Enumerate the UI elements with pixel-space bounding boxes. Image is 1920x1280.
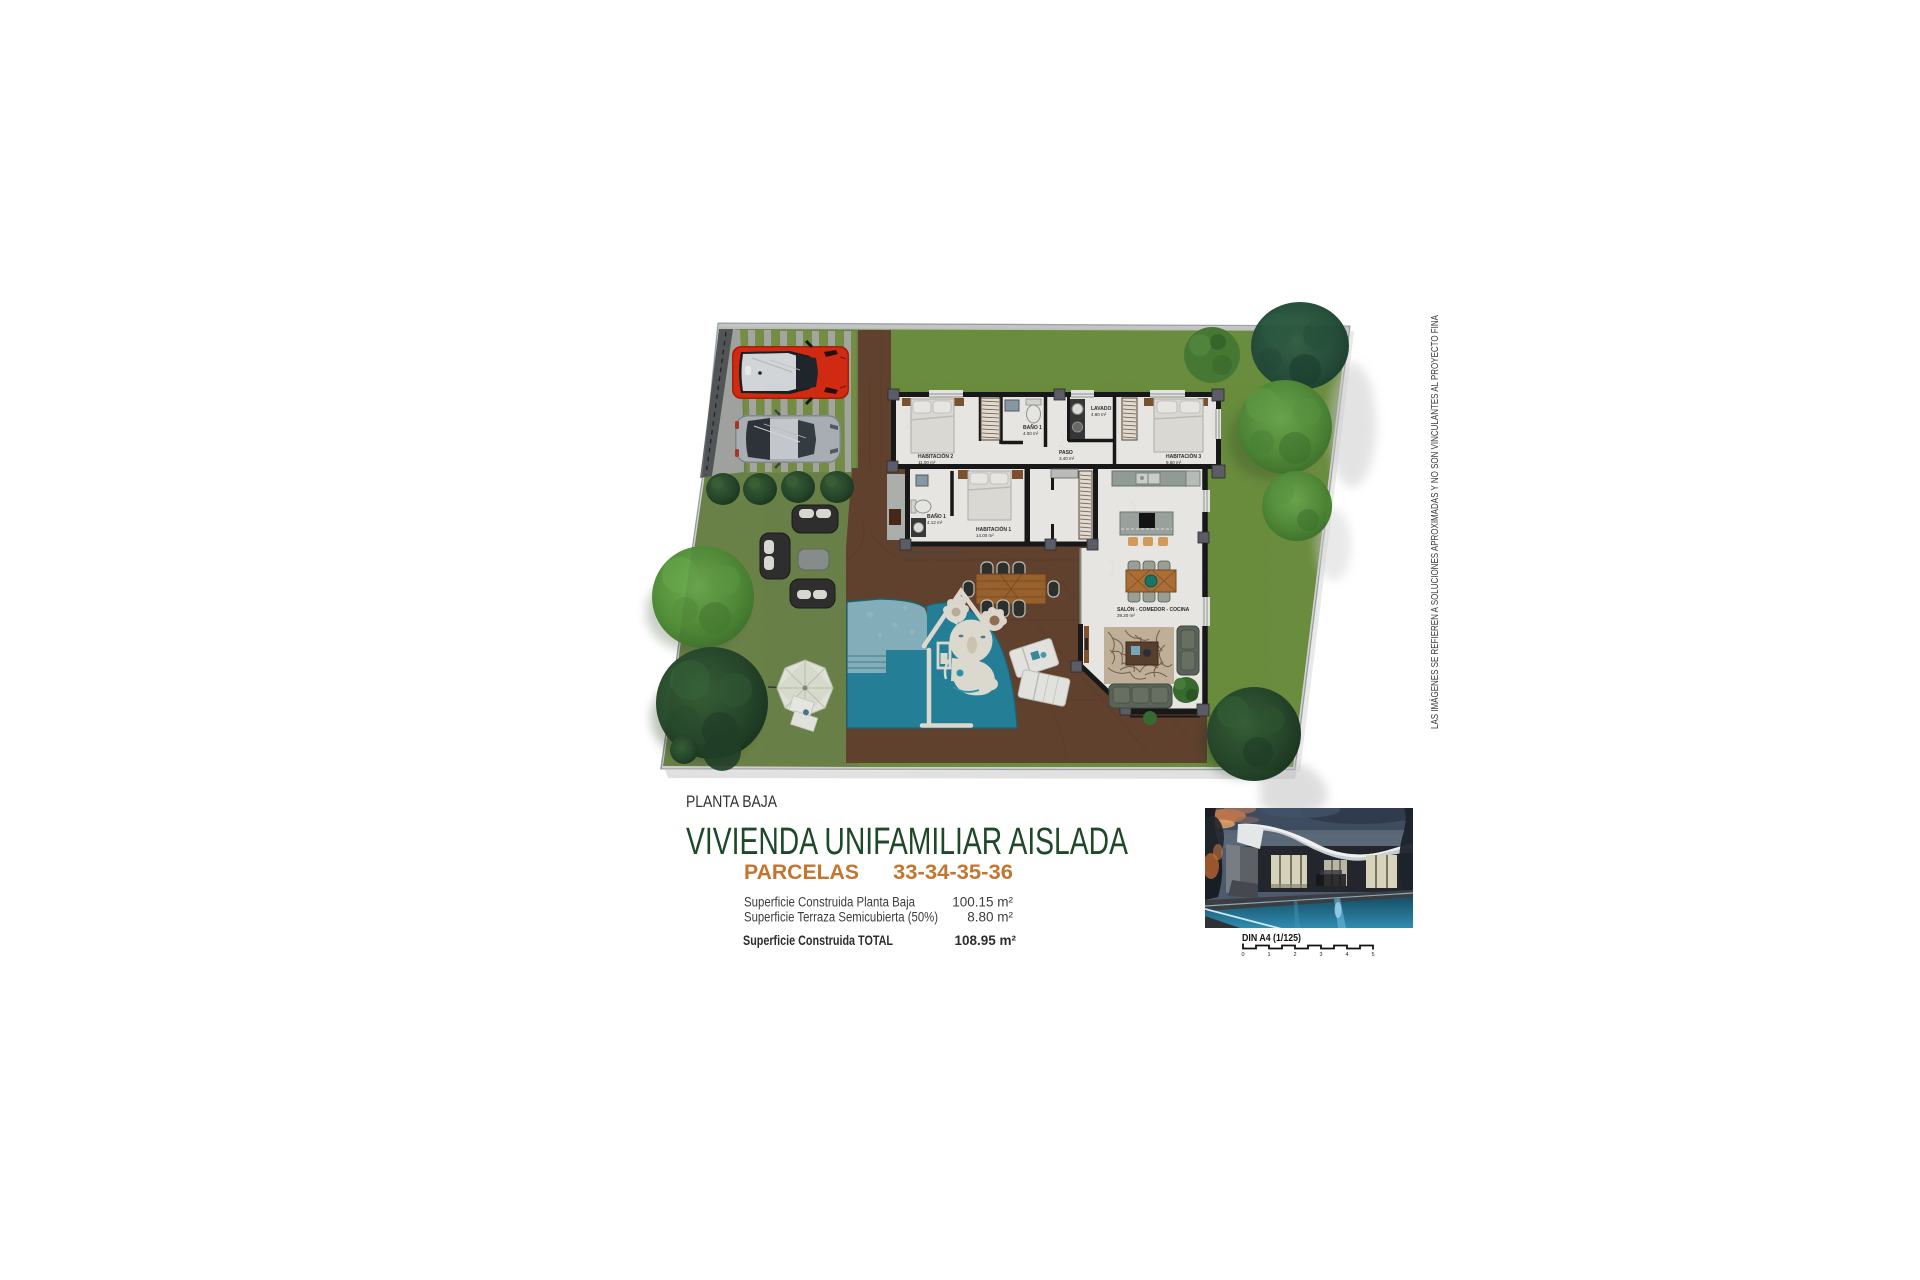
- svg-text:5: 5: [1371, 952, 1374, 958]
- svg-text:0: 0: [1241, 952, 1244, 958]
- svg-text:8.80 m²: 8.80 m²: [967, 910, 1013, 925]
- svg-text:108.95 m²: 108.95 m²: [954, 933, 1016, 948]
- svg-text:1: 1: [1267, 952, 1270, 958]
- svg-text:4: 4: [1345, 952, 1348, 958]
- svg-text:100.15 m²: 100.15 m²: [952, 895, 1013, 910]
- svg-text:LAS IMÁGENES SE REFIEREN A SOL: LAS IMÁGENES SE REFIEREN A SOLUCIONES AP…: [1428, 315, 1441, 729]
- svg-text:DIN A4 (1/125): DIN A4 (1/125): [1242, 932, 1301, 944]
- svg-text:3: 3: [1319, 952, 1322, 958]
- svg-text:Superficie Construida TOTAL: Superficie Construida TOTAL: [743, 933, 893, 948]
- svg-text:PARCELAS: PARCELAS: [744, 861, 859, 884]
- svg-text:Superficie Terraza Semicubiert: Superficie Terraza Semicubierta (50%): [744, 910, 938, 925]
- svg-text:PLANTA BAJA: PLANTA BAJA: [686, 793, 777, 811]
- svg-text:VIVIENDA UNIFAMILIAR AISLADA: VIVIENDA UNIFAMILIAR AISLADA: [686, 821, 1128, 863]
- svg-text:2: 2: [1293, 952, 1296, 958]
- svg-text:33-34-35-36: 33-34-35-36: [893, 861, 1013, 884]
- svg-text:Superficie Construida Planta B: Superficie Construida Planta Baja: [744, 895, 915, 910]
